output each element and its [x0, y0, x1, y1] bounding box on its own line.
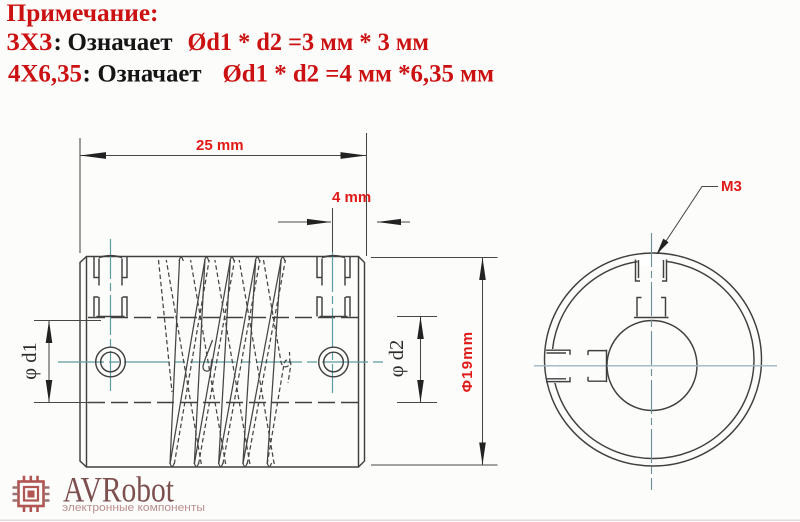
svg-text:4 mm: 4 mm — [332, 189, 371, 206]
svg-text:Примечание:: Примечание: — [7, 0, 159, 27]
svg-text:Φ19mm: Φ19mm — [459, 331, 476, 393]
svg-text:φ d1: φ d1 — [19, 342, 41, 379]
svg-text:4X6,35: 4X6,35 — [8, 61, 82, 88]
svg-text:Означает: Означает — [68, 29, 173, 56]
svg-text::: : — [83, 61, 91, 88]
svg-text::: : — [54, 29, 62, 56]
svg-text:M3: M3 — [721, 178, 742, 195]
svg-text:электронные компоненты: электронные компоненты — [62, 502, 205, 514]
svg-text:3X3: 3X3 — [7, 29, 53, 56]
svg-text:Ød1 * d2 =4 мм *6,35 мм: Ød1 * d2 =4 мм *6,35 мм — [223, 61, 495, 88]
svg-text:Означает: Означает — [98, 61, 202, 88]
svg-text:25 mm: 25 mm — [196, 137, 244, 154]
svg-text:φ d2: φ d2 — [386, 340, 408, 377]
svg-text:Ød1 * d2 =3 мм * 3 мм: Ød1 * d2 =3 мм * 3 мм — [188, 29, 430, 56]
